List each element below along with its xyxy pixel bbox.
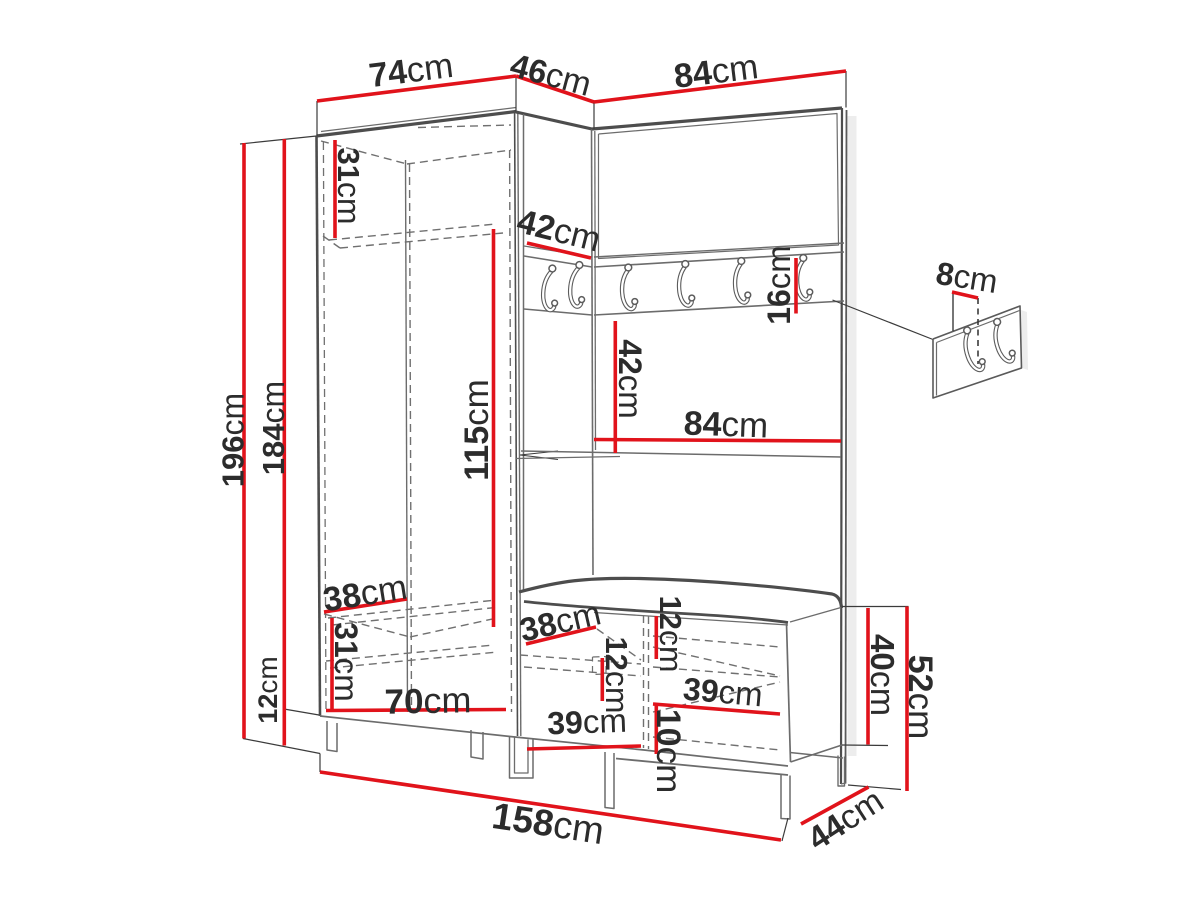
- svg-text:10cm: 10cm: [649, 709, 688, 793]
- svg-text:38cm: 38cm: [320, 568, 410, 620]
- svg-text:12cm: 12cm: [653, 595, 689, 672]
- svg-text:52cm: 52cm: [901, 655, 940, 739]
- svg-text:74cm: 74cm: [367, 46, 456, 95]
- svg-text:44cm: 44cm: [801, 782, 891, 859]
- svg-text:16cm: 16cm: [760, 245, 797, 325]
- svg-text:70cm: 70cm: [384, 679, 472, 722]
- svg-text:46cm: 46cm: [506, 46, 595, 104]
- svg-text:39cm: 39cm: [682, 670, 765, 714]
- svg-text:12cm: 12cm: [599, 636, 635, 713]
- svg-text:184cm: 184cm: [255, 381, 291, 475]
- svg-text:8cm: 8cm: [934, 254, 1001, 300]
- svg-text:196cm: 196cm: [215, 393, 251, 487]
- svg-text:84cm: 84cm: [683, 404, 769, 446]
- svg-text:31cm: 31cm: [328, 622, 365, 702]
- svg-text:12cm: 12cm: [252, 656, 283, 723]
- svg-text:158cm: 158cm: [489, 795, 606, 853]
- svg-text:84cm: 84cm: [672, 47, 761, 96]
- svg-text:31cm: 31cm: [331, 147, 367, 224]
- svg-text:40cm: 40cm: [863, 634, 901, 716]
- svg-text:115cm: 115cm: [457, 379, 496, 481]
- svg-text:42cm: 42cm: [612, 339, 649, 419]
